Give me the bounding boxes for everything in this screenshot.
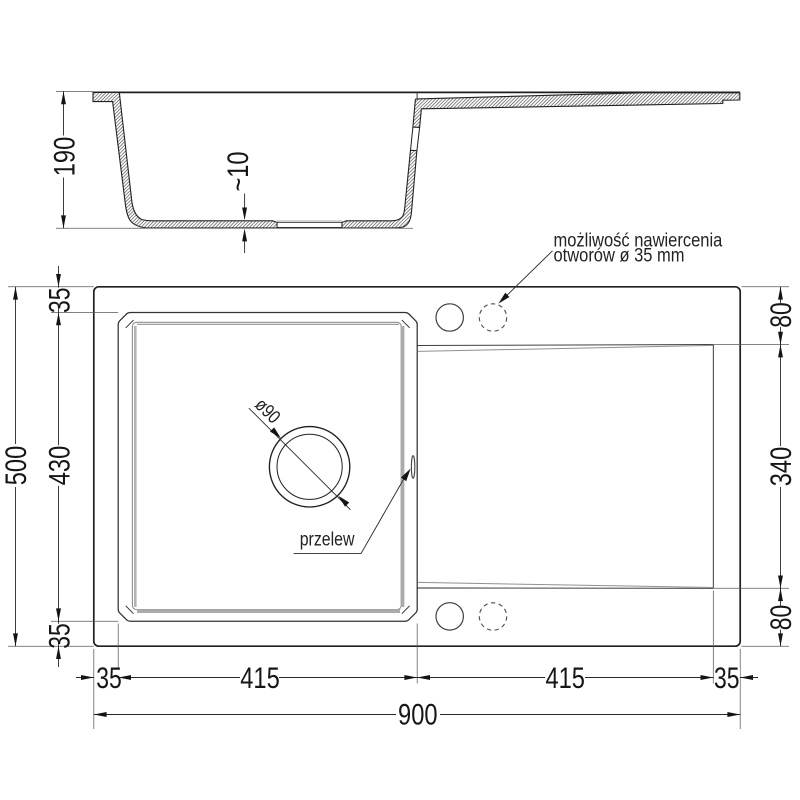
svg-text:430: 430 <box>44 446 77 486</box>
svg-text:35: 35 <box>44 623 77 649</box>
svg-text:500: 500 <box>0 446 33 486</box>
svg-text:35: 35 <box>714 662 740 695</box>
svg-text:~10: ~10 <box>222 152 255 192</box>
svg-text:otworów ø 35 mm: otworów ø 35 mm <box>554 245 685 266</box>
svg-text:przelew: przelew <box>300 529 355 550</box>
svg-text:340: 340 <box>765 447 798 487</box>
svg-text:80: 80 <box>765 605 798 631</box>
svg-text:190: 190 <box>49 137 82 177</box>
svg-text:35: 35 <box>44 288 77 314</box>
svg-text:415: 415 <box>545 662 585 695</box>
svg-text:900: 900 <box>398 699 438 732</box>
svg-text:80: 80 <box>765 302 798 328</box>
svg-text:35: 35 <box>96 662 122 695</box>
svg-text:415: 415 <box>240 662 280 695</box>
